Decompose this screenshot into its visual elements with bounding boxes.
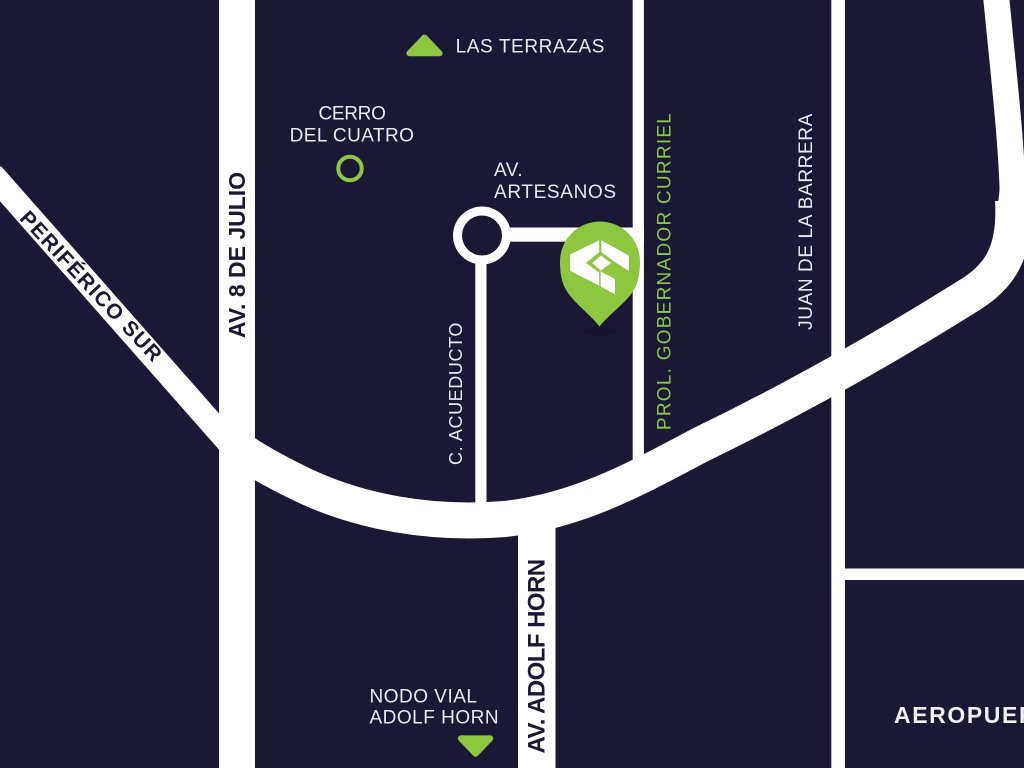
svg-text:AV. 8 DE JULIO: AV. 8 DE JULIO [224,172,250,338]
svg-text:LAS TERRAZAS: LAS TERRAZAS [456,37,605,58]
svg-text:AEROPUERTO: AEROPUERTO [894,702,1024,728]
svg-text:CERRO: CERRO [318,104,385,125]
svg-text:NODO VIAL: NODO VIAL [370,687,478,708]
svg-text:JUAN DE LA BARRERA: JUAN DE LA BARRERA [796,113,817,330]
svg-text:DEL CUATRO: DEL CUATRO [290,126,415,147]
svg-text:PROL. GOBERNADOR CURRIEL: PROL. GOBERNADOR CURRIEL [655,112,676,430]
svg-text:AV.: AV. [494,160,523,181]
svg-text:AV. ADOLF HORN: AV. ADOLF HORN [524,559,551,753]
svg-text:ARTESANOS: ARTESANOS [494,182,617,203]
svg-text:ADOLF HORN: ADOLF HORN [370,708,500,729]
svg-text:C. ACUEDUCTO: C. ACUEDUCTO [446,322,466,465]
